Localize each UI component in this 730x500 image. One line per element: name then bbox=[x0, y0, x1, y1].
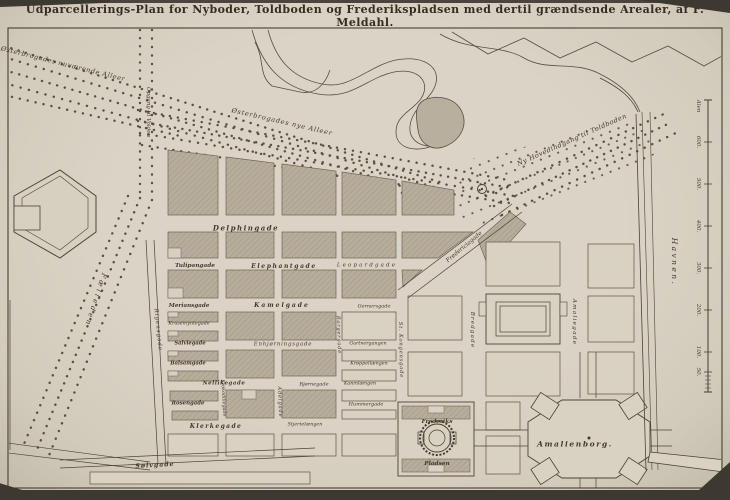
scanned-map-photo: Udparcellerings-Plan for Nyboder, Toldbo… bbox=[0, 0, 730, 500]
scale-tick-label: 200. bbox=[695, 304, 701, 316]
street-label-bjoernegade: Bjørnegade bbox=[299, 383, 328, 388]
roundabout-marker bbox=[478, 185, 487, 194]
street-label-borgergade: Borgergade bbox=[335, 316, 341, 354]
street-label-kamelgade: Kamelgade bbox=[254, 303, 310, 309]
scale-tick-label: Alen bbox=[695, 100, 701, 113]
street-label-st-kongensgade: St. Kongensgade bbox=[397, 322, 403, 378]
pier bbox=[648, 452, 726, 472]
street-label-meriansgade: Meriansgade bbox=[169, 304, 210, 310]
street-label-gernersgade: Gernersgade bbox=[358, 305, 391, 310]
street-label-enhjoerningsgade: Enhjørningsgade bbox=[254, 342, 313, 347]
frederiks-hospital bbox=[479, 294, 567, 344]
street-label-krusemyntegade: Krusemyntegade bbox=[168, 323, 209, 328]
park-grove-trees bbox=[444, 116, 660, 236]
scale-tick-label: 400. bbox=[695, 220, 701, 232]
place-label-pladsen: Pladsen bbox=[424, 462, 450, 468]
street-label-salviegade: Salviegade bbox=[174, 341, 205, 346]
street-label-balsamgade: Balsamgade bbox=[170, 361, 205, 366]
street-label-elephantgade: Elephantgade bbox=[251, 264, 317, 270]
scale-tick-label: 100. bbox=[695, 346, 701, 358]
street-label-adelgade: Adelgade bbox=[276, 386, 282, 417]
scale-tick-label: 600. bbox=[695, 136, 701, 148]
street-label-rosengade: Rosengade bbox=[172, 401, 205, 406]
street-label-klerkegade: Klerkegade bbox=[190, 424, 243, 430]
area-label-havnen: Havnen. bbox=[670, 238, 678, 287]
street-label-amaliegade: Amaliegade bbox=[570, 299, 576, 346]
street-label-stjertelaengen: Stjertelængen bbox=[288, 424, 323, 429]
street-label-hummergade: Hummergade bbox=[349, 403, 384, 408]
street-label-bredgade: Bredgade bbox=[468, 312, 474, 349]
scale-tick-label: 50. bbox=[695, 368, 701, 377]
scale-tick-label: 300. bbox=[695, 262, 701, 274]
place-label-amalienborg: Amalienborg. bbox=[537, 440, 613, 448]
street-label-delphingade: Delphingade bbox=[213, 225, 279, 232]
street-label-leopardgade: Leopardgade bbox=[337, 263, 397, 268]
place-label-frederiks: Frederiks bbox=[421, 420, 452, 426]
street-label-tulipangade: Tulipangade bbox=[175, 264, 215, 270]
photo-backdrop-edge bbox=[0, 490, 730, 500]
street-label-krokodillegade: Krokodillegade bbox=[219, 379, 226, 416]
scale-tick-label: 500. bbox=[695, 178, 701, 190]
street-label-kroeppellaengen: Krøppellængen bbox=[350, 363, 387, 368]
western-bastion bbox=[10, 170, 96, 450]
avenue-trees bbox=[4, 30, 678, 458]
street-label-opgang-til-volden: Opgang til Volden bbox=[144, 87, 150, 137]
street-label-kaninlaengen: Kaninlængen bbox=[344, 383, 376, 388]
street-label-gartnergangen: Gartnergangen bbox=[349, 343, 386, 348]
scale-bar bbox=[704, 100, 712, 392]
